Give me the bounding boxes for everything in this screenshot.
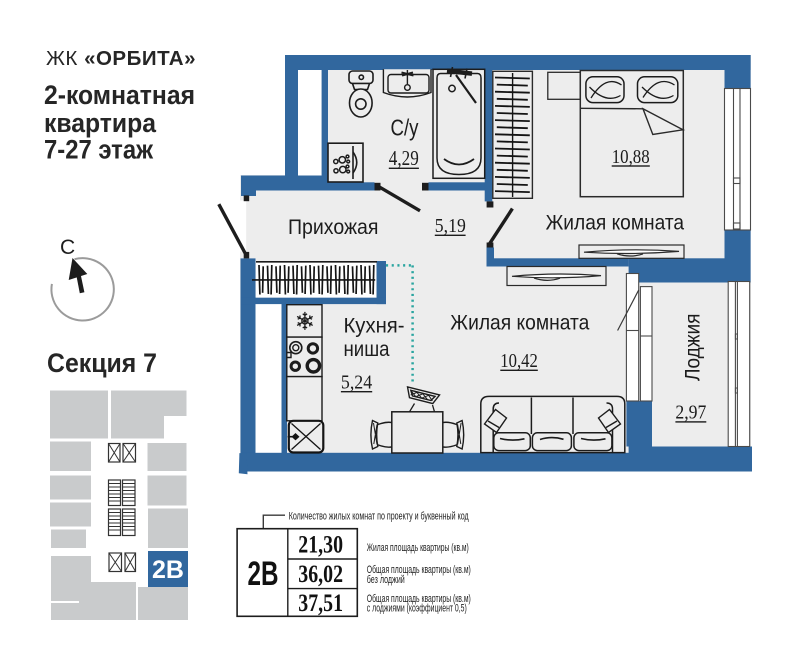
svg-text:Лоджия: Лоджия <box>681 314 705 382</box>
svg-text:Прихожая: Прихожая <box>288 215 379 239</box>
svg-text:Жилая комната: Жилая комната <box>450 311 589 335</box>
svg-text:Секция 7: Секция 7 <box>47 348 157 378</box>
svg-text:С: С <box>60 236 75 259</box>
svg-text:5,24: 5,24 <box>341 373 373 394</box>
svg-text:2В: 2В <box>248 555 279 593</box>
svg-text:4,29: 4,29 <box>389 146 419 170</box>
svg-text:с лоджиями (коэффициент 0,5): с лоджиями (коэффициент 0,5) <box>367 602 467 614</box>
svg-text:Жилая комната: Жилая комната <box>546 211 685 235</box>
svg-text:7-27 этаж: 7-27 этаж <box>44 135 154 165</box>
svg-text:квартира: квартира <box>44 108 157 138</box>
svg-text:36,02: 36,02 <box>298 561 343 588</box>
svg-text:37,51: 37,51 <box>298 590 343 617</box>
svg-text:ЖК «ОРБИТА»: ЖК «ОРБИТА» <box>46 47 196 70</box>
svg-text:без лоджий: без лоджий <box>367 574 405 586</box>
svg-text:10,88: 10,88 <box>612 147 650 168</box>
svg-text:ниша: ниша <box>344 337 390 361</box>
svg-text:5,19: 5,19 <box>435 215 466 237</box>
svg-text:2,97: 2,97 <box>675 403 706 424</box>
svg-text:Кухня-: Кухня- <box>344 314 405 338</box>
svg-text:21,30: 21,30 <box>298 531 343 558</box>
svg-text:Количество жилых комнат по про: Количество жилых комнат по проекту и бук… <box>289 511 469 523</box>
svg-text:10,42: 10,42 <box>500 351 538 372</box>
svg-text:С/у: С/у <box>391 115 419 141</box>
svg-text:2В: 2В <box>152 556 184 584</box>
svg-text:2-комнатная: 2-комнатная <box>44 80 195 110</box>
svg-text:Жилая площадь квартиры (кв.м): Жилая площадь квартиры (кв.м) <box>367 542 469 554</box>
